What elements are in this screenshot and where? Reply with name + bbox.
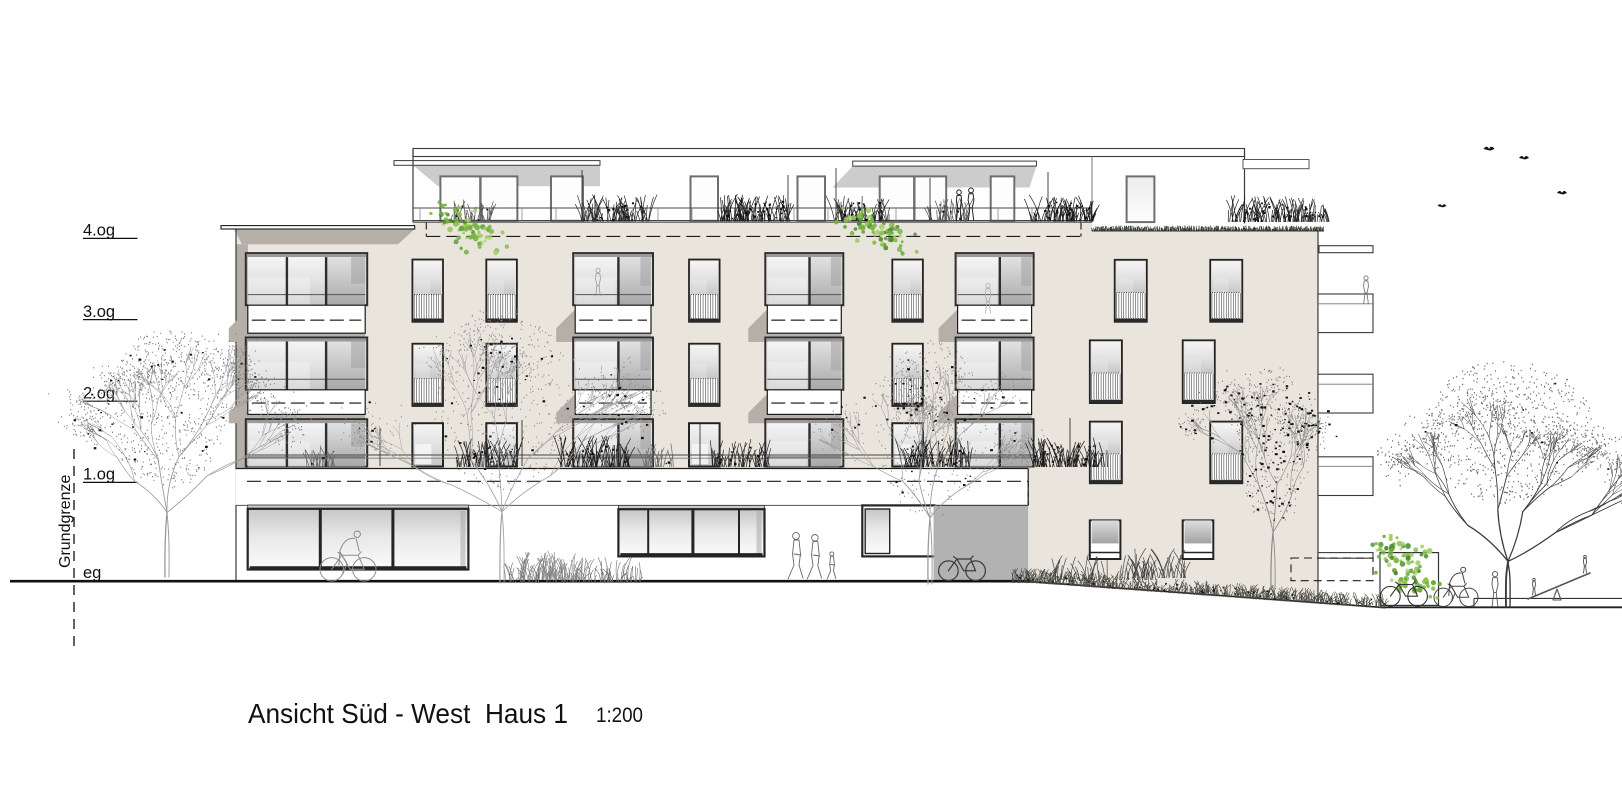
svg-text:4.og: 4.og <box>83 222 115 240</box>
svg-text:1:200: 1:200 <box>596 703 643 727</box>
svg-text:1.og: 1.og <box>83 466 115 484</box>
svg-text:2.og: 2.og <box>83 385 115 403</box>
svg-text:3.og: 3.og <box>83 303 115 321</box>
svg-text:Ansicht Süd - West Haus 1: Ansicht Süd - West Haus 1 <box>248 698 568 729</box>
svg-text:eg: eg <box>83 564 101 582</box>
svg-text:Grundgrenze: Grundgrenze <box>57 475 74 568</box>
